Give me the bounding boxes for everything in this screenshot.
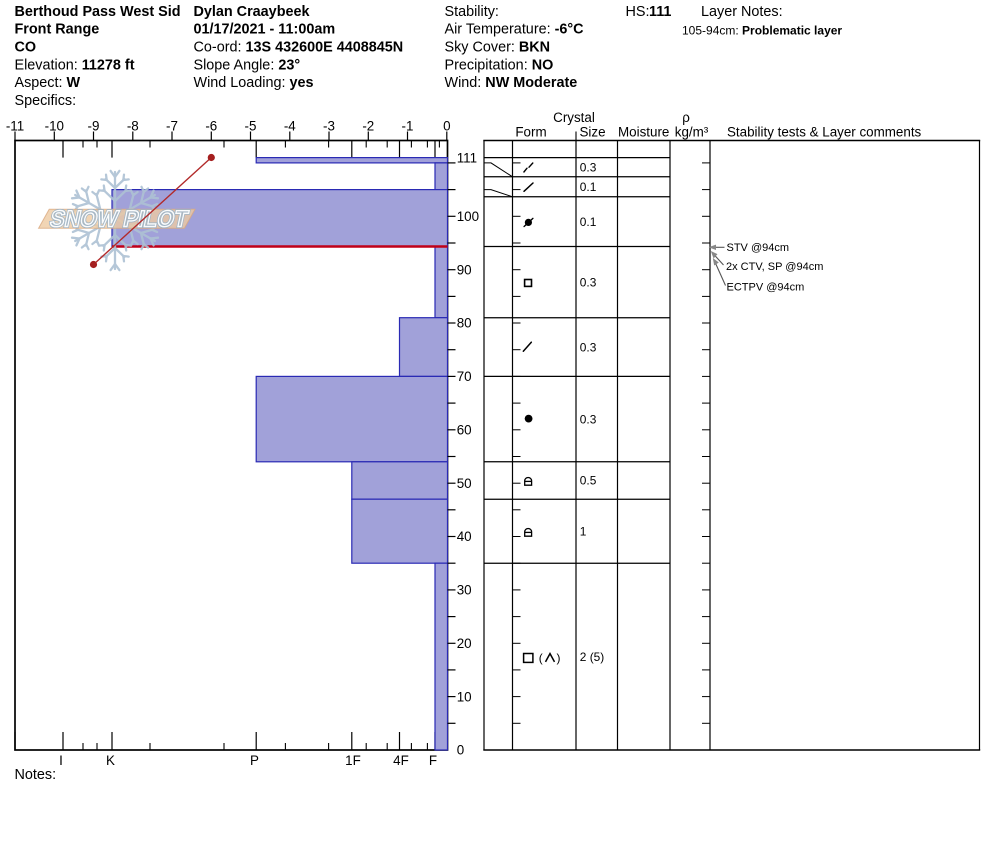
svg-text:Form: Form — [515, 125, 546, 140]
svg-text:1: 1 — [580, 524, 587, 538]
svg-text:P: P — [250, 753, 259, 768]
svg-text:I: I — [59, 753, 63, 768]
svg-text:Dylan Craaybeek: Dylan Craaybeek — [194, 4, 311, 20]
svg-text:F: F — [429, 753, 437, 768]
svg-text:01/17/2021 - 11:00am: 01/17/2021 - 11:00am — [194, 22, 336, 38]
svg-text:Moisture: Moisture — [618, 125, 669, 140]
svg-text:-5: -5 — [245, 119, 257, 134]
svg-text:Elevation: 11278 ft: Elevation: 11278 ft — [15, 57, 135, 73]
svg-text:-6: -6 — [205, 119, 217, 134]
svg-text:-4: -4 — [284, 119, 296, 134]
svg-text:0.3: 0.3 — [580, 412, 597, 426]
svg-text:-9: -9 — [88, 119, 100, 134]
svg-text:ECTPV @94cm: ECTPV @94cm — [727, 282, 805, 294]
svg-text:Wind Loading: yes: Wind Loading: yes — [194, 75, 314, 91]
svg-text:50: 50 — [457, 476, 472, 491]
svg-text:Notes:: Notes: — [15, 767, 57, 783]
svg-text:ρ: ρ — [682, 110, 690, 125]
svg-text:-3: -3 — [323, 119, 335, 134]
svg-text:2 (5): 2 (5) — [580, 650, 604, 664]
svg-text:40: 40 — [457, 529, 472, 544]
svg-text:70: 70 — [457, 369, 472, 384]
svg-text:-8: -8 — [127, 119, 139, 134]
svg-text:): ) — [557, 651, 561, 665]
svg-text:K: K — [106, 753, 115, 768]
svg-text:0.1: 0.1 — [580, 180, 597, 194]
svg-text:0.3: 0.3 — [580, 340, 597, 354]
svg-text:Sky Cover: BKN: Sky Cover: BKN — [445, 40, 551, 56]
svg-text:4F: 4F — [393, 753, 409, 768]
svg-text:Layer Notes:: Layer Notes: — [701, 4, 783, 20]
svg-text:105-94cm: Problematic layer: 105-94cm: Problematic layer — [682, 24, 842, 38]
svg-text:0.3: 0.3 — [580, 275, 597, 289]
svg-text:Berthoud Pass West Sid: Berthoud Pass West Sid — [15, 4, 181, 20]
svg-text:Front Range: Front Range — [15, 22, 100, 38]
svg-text:HS:: HS: — [626, 4, 650, 20]
svg-text:-1: -1 — [402, 119, 414, 134]
svg-text:30: 30 — [457, 583, 472, 598]
svg-text:Co-ord: 13S 432600E 4408845N: Co-ord: 13S 432600E 4408845N — [194, 40, 404, 56]
svg-text:Air Temperature: -6°C: Air Temperature: -6°C — [445, 22, 584, 38]
svg-text:Stability:: Stability: — [445, 4, 499, 20]
svg-text:Slope Angle: 23°: Slope Angle: 23° — [194, 57, 301, 73]
svg-text:111: 111 — [649, 4, 671, 20]
svg-text:111: 111 — [457, 150, 477, 165]
svg-text:100: 100 — [457, 209, 479, 224]
svg-text:0.5: 0.5 — [580, 474, 597, 488]
svg-text:Wind: NW Moderate: Wind: NW Moderate — [445, 75, 578, 91]
svg-text:80: 80 — [457, 316, 472, 331]
svg-text:Precipitation: NO: Precipitation: NO — [445, 57, 554, 73]
svg-text:Size: Size — [579, 125, 605, 140]
svg-text:0: 0 — [443, 119, 450, 134]
svg-text:Aspect: W: Aspect: W — [15, 75, 81, 91]
svg-text:-11: -11 — [6, 119, 24, 134]
svg-text:0.3: 0.3 — [580, 160, 597, 174]
svg-text:kg/m³: kg/m³ — [675, 125, 709, 140]
svg-text:20: 20 — [457, 636, 472, 651]
svg-text:-7: -7 — [166, 119, 178, 134]
svg-text:90: 90 — [457, 262, 472, 277]
svg-text:2x CTV, SP @94cm: 2x CTV, SP @94cm — [726, 261, 823, 273]
svg-text:0.1: 0.1 — [580, 215, 597, 229]
svg-text:CO: CO — [15, 40, 37, 56]
svg-text:1F: 1F — [345, 753, 361, 768]
svg-text:Specifics:: Specifics: — [15, 93, 77, 109]
svg-text:10: 10 — [457, 689, 472, 704]
svg-text:-2: -2 — [362, 119, 374, 134]
svg-text:Crystal: Crystal — [553, 110, 595, 125]
svg-text:60: 60 — [457, 423, 472, 438]
svg-text:SNOW PILOT: SNOW PILOT — [48, 206, 190, 232]
svg-text:-10: -10 — [45, 119, 64, 134]
svg-text:Stability tests & Layer commen: Stability tests & Layer comments — [727, 125, 922, 140]
svg-text:STV @94cm: STV @94cm — [727, 242, 790, 254]
svg-text:(: ( — [539, 651, 543, 665]
svg-text:0: 0 — [457, 743, 464, 758]
